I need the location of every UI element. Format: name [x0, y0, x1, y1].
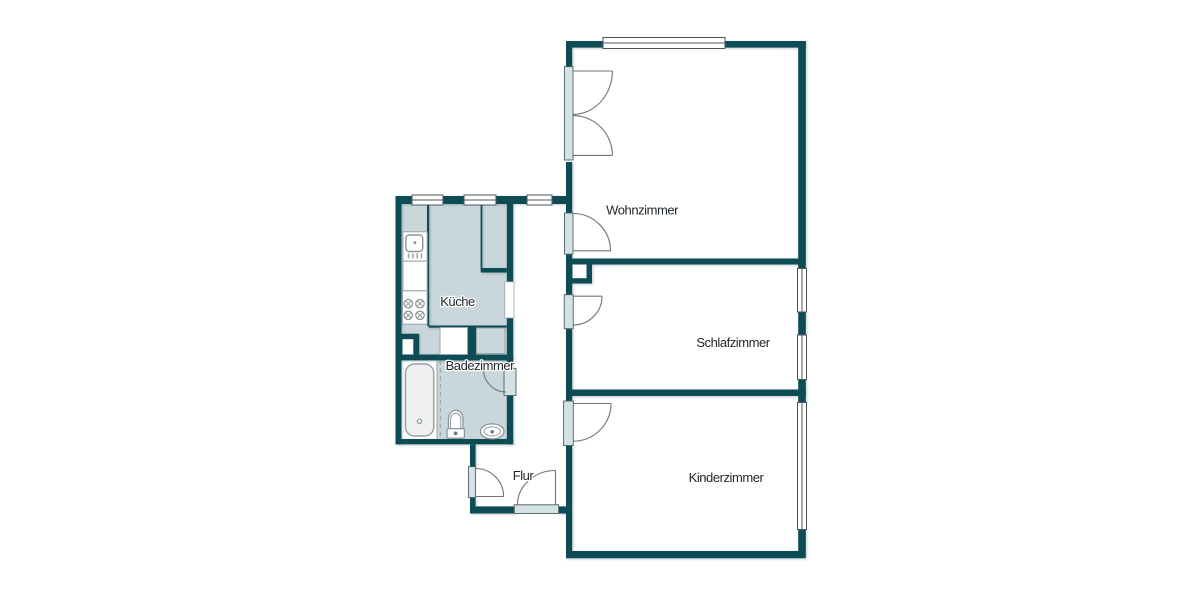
svg-text:Schlafzimmer: Schlafzimmer	[696, 335, 770, 350]
svg-text:Badezimmer: Badezimmer	[446, 358, 516, 373]
svg-text:Küche: Küche	[440, 294, 475, 309]
svg-text:Kinderzimmer: Kinderzimmer	[689, 470, 765, 485]
svg-text:Wohnzimmer: Wohnzimmer	[606, 203, 679, 218]
svg-text:Flur: Flur	[513, 468, 535, 483]
